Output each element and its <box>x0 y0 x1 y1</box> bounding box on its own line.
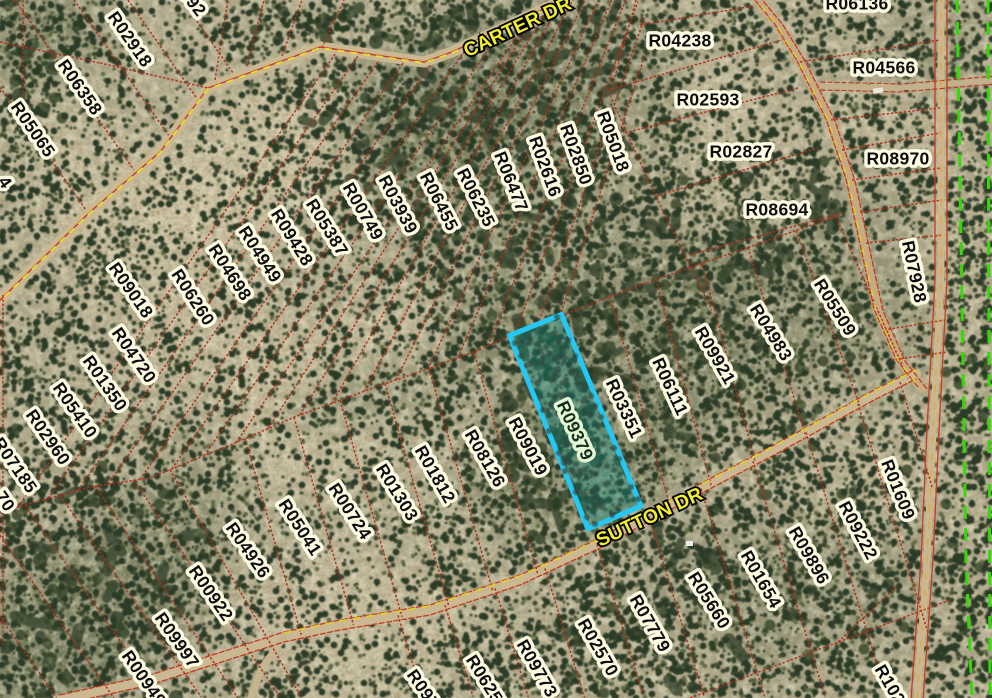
svg-text:R02827: R02827 <box>709 142 772 162</box>
svg-text:R08694: R08694 <box>745 200 808 220</box>
svg-text:R04566: R04566 <box>852 58 915 78</box>
svg-text:R02593: R02593 <box>676 90 739 110</box>
svg-text:R08970: R08970 <box>866 149 929 169</box>
svg-text:R04238: R04238 <box>648 31 711 51</box>
svg-text:R06136: R06136 <box>825 0 888 14</box>
